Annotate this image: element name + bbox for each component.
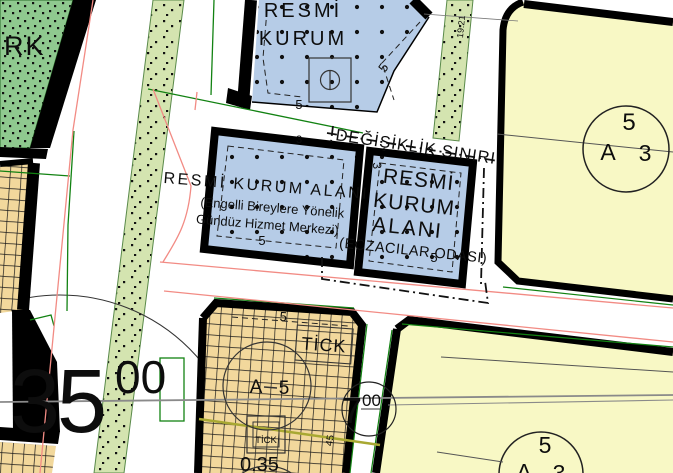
road-width-side-value: 7	[342, 390, 362, 431]
parcel-ne-number: 3	[639, 140, 652, 166]
official-top-title-line2: KURUM	[259, 28, 347, 50]
dim-tick-top: 5	[279, 309, 287, 324]
road-width-main-decimals: 00	[115, 351, 166, 403]
dim-mid-bottom: 5	[258, 233, 265, 248]
parcel-a5-number: 5	[279, 378, 290, 399]
parcel-se-letter: A	[516, 459, 532, 473]
road-width-side-decimals: 00	[362, 391, 381, 410]
tick-ratio-label: 0.35	[240, 454, 279, 473]
parcel-ne-letter: A	[600, 139, 616, 165]
dim-right-bottom: 5	[430, 250, 437, 265]
park-label: RK	[4, 31, 46, 61]
parcel-dash-a5	[264, 387, 277, 388]
parcel-se-block: 5	[539, 432, 552, 458]
parcel-ne-block: 5	[622, 109, 635, 136]
tick-symbol-label: TİCK	[255, 435, 277, 446]
road-width-main-value: 35	[10, 352, 104, 452]
park-bottom-border	[0, 147, 48, 159]
official-top-left-border	[243, 0, 251, 104]
tick-zone-label: TİCK	[301, 333, 347, 356]
zoning-plan-map: RK RESMİ KURUM 5 5 DEĞİŞİKLİK SINIRI RES…	[0, 0, 673, 473]
parcel-se-number: 3	[553, 460, 566, 473]
commercial-left-border	[198, 318, 203, 473]
parcel-a5-letter: A	[250, 377, 263, 398]
zoning-plan-canvas: RK RESMİ KURUM 5 5 DEĞİŞİKLİK SINIRI RES…	[0, 0, 673, 473]
dim-mid-top: 3	[296, 134, 302, 146]
dim-top-blue-bottom: 5	[295, 97, 302, 112]
official-top-title-line1: RESMİ	[264, 0, 342, 22]
dim-right-top: 3	[426, 144, 433, 159]
